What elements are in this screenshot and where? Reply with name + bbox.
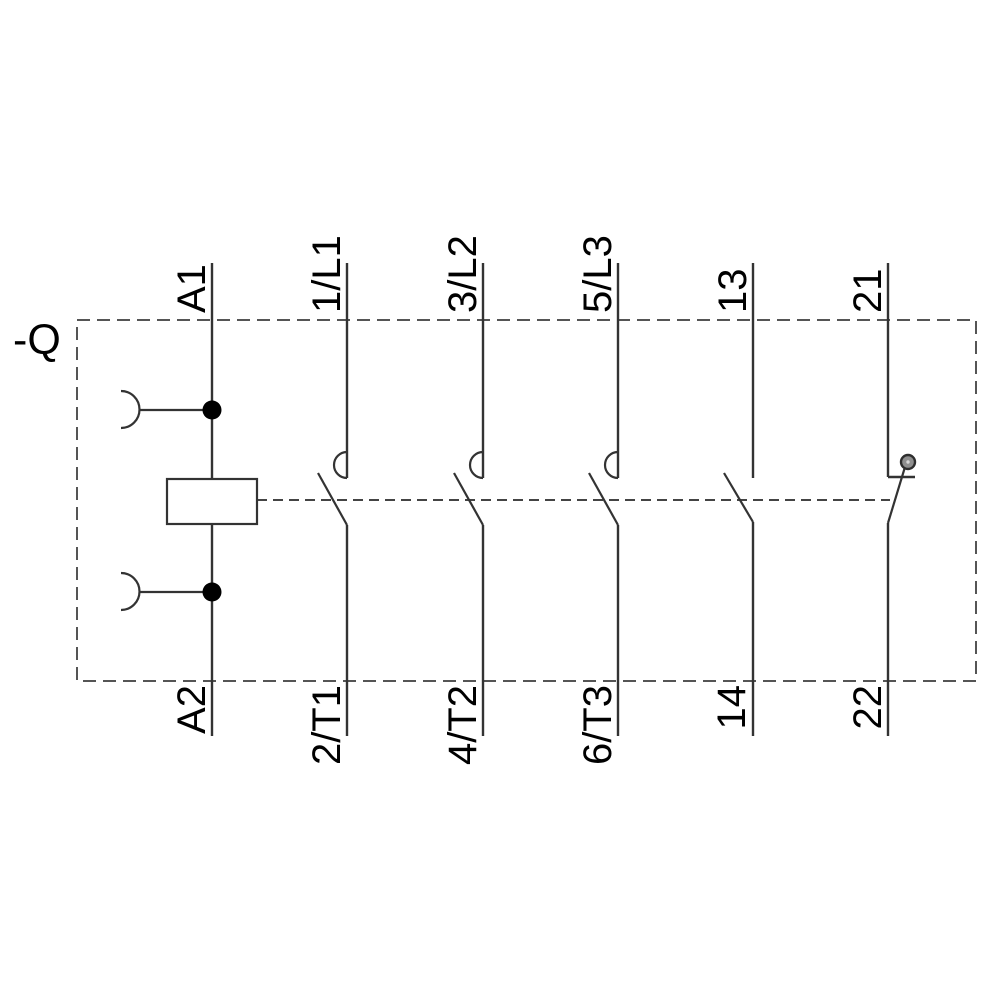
nc-pivot-dot-core [906, 460, 909, 463]
plug-socket-arc-bottom [121, 573, 140, 610]
plug-socket-arc-top [121, 391, 140, 428]
terminal-label-2t1: 2/T1 [307, 685, 347, 765]
terminal-label-3l2: 3/L2 [443, 235, 483, 313]
terminal-label-14: 14 [712, 685, 752, 730]
terminal-label-22: 22 [848, 685, 888, 730]
aux-nc-contact [888, 263, 915, 736]
terminal-label-1l1: 1/L1 [307, 235, 347, 313]
contact-arm-21 [888, 467, 905, 523]
terminal-label-13: 13 [713, 269, 753, 314]
junction-dot-top [203, 401, 222, 420]
terminal-label-a2: A2 [172, 685, 212, 734]
contact-seat-arc-1 [334, 452, 347, 478]
terminal-label-5l3: 5/L3 [578, 235, 618, 313]
contact-seat-arc-2 [470, 452, 483, 478]
contact-arm-13 [724, 473, 753, 522]
junction-dot-bottom [203, 583, 222, 602]
terminal-label-a1: A1 [172, 264, 212, 313]
device-tag: -Q [13, 319, 61, 362]
schematic-canvas: -Q A1 1/L1 3/L2 5/L3 13 21 A2 2/T1 4/T2 … [0, 0, 1000, 1000]
coil-branch [121, 263, 257, 736]
schematic-drawing [0, 0, 1000, 1000]
terminal-label-6t3: 6/T3 [578, 685, 618, 765]
terminal-label-21: 21 [848, 269, 888, 314]
coil-symbol [167, 479, 257, 524]
contact-seat-arc-3 [605, 452, 618, 478]
terminal-label-4t2: 4/T2 [443, 685, 483, 765]
